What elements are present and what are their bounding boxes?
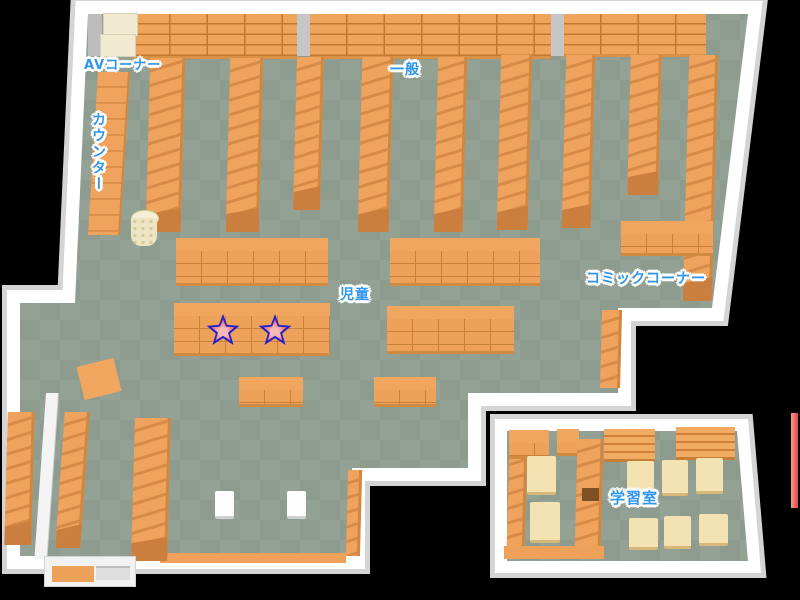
study-table xyxy=(664,516,691,549)
study-shelf xyxy=(509,430,549,459)
bookshelf-row xyxy=(562,55,596,228)
study-table xyxy=(662,460,688,496)
kids-shelf xyxy=(387,306,514,354)
label-children: 児童 xyxy=(340,284,370,304)
wall-shelf-top-left xyxy=(133,14,297,59)
kids-shelf-small xyxy=(374,377,436,407)
study-wall-unit xyxy=(604,429,655,462)
label-comic-corner: コミックコーナー xyxy=(586,268,706,288)
kiosk-box xyxy=(215,491,234,519)
bookshelf-row xyxy=(497,55,533,230)
entrance-door xyxy=(96,566,130,580)
study-divider-gap xyxy=(582,488,599,501)
bookshelf-row xyxy=(226,58,264,232)
bookshelf-row xyxy=(293,57,324,210)
kids-shelf xyxy=(390,238,540,286)
study-shelf xyxy=(557,429,579,456)
library-floor-map: AVコーナー 一般 カウンター 児童 コミックコーナー 学習室 xyxy=(0,0,800,600)
top-wall-gap xyxy=(551,14,564,56)
bookshelf-row xyxy=(146,58,186,232)
study-wall-unit xyxy=(676,427,735,460)
comic-shelf xyxy=(621,221,713,256)
study-table xyxy=(629,518,658,550)
step-wall-shelf xyxy=(346,470,362,556)
study-table xyxy=(527,456,556,495)
kids-shelf-starred xyxy=(174,303,330,356)
bookshelf-row xyxy=(358,57,394,232)
bottom-wall-shelf xyxy=(160,553,346,563)
study-table xyxy=(530,502,560,543)
bookshelf-row xyxy=(627,55,662,195)
label-counter: カウンター xyxy=(88,112,108,192)
study-table xyxy=(696,458,723,494)
wall-shelf-top-right xyxy=(564,14,706,57)
study-table xyxy=(699,514,728,546)
study-bottom-shelf xyxy=(504,546,604,559)
wall-shelf-top-center xyxy=(310,14,551,59)
kids-shelf-small xyxy=(239,377,303,407)
label-study-room: 学習室 xyxy=(610,487,658,508)
bookshelf-row xyxy=(131,418,171,561)
label-av-corner: AVコーナー xyxy=(84,54,161,73)
kiosk-box xyxy=(287,491,306,519)
kids-shelf xyxy=(176,238,328,286)
entrance-mat xyxy=(52,566,94,582)
bookshelf-row xyxy=(434,57,468,232)
map-edge-marker xyxy=(791,413,798,508)
label-general: 一般 xyxy=(390,59,420,79)
pillar-display xyxy=(131,218,157,246)
av-desk xyxy=(103,13,138,36)
top-wall-gap xyxy=(297,14,310,56)
comic-wall-shelf xyxy=(600,310,622,388)
bookshelf-row xyxy=(4,412,34,545)
